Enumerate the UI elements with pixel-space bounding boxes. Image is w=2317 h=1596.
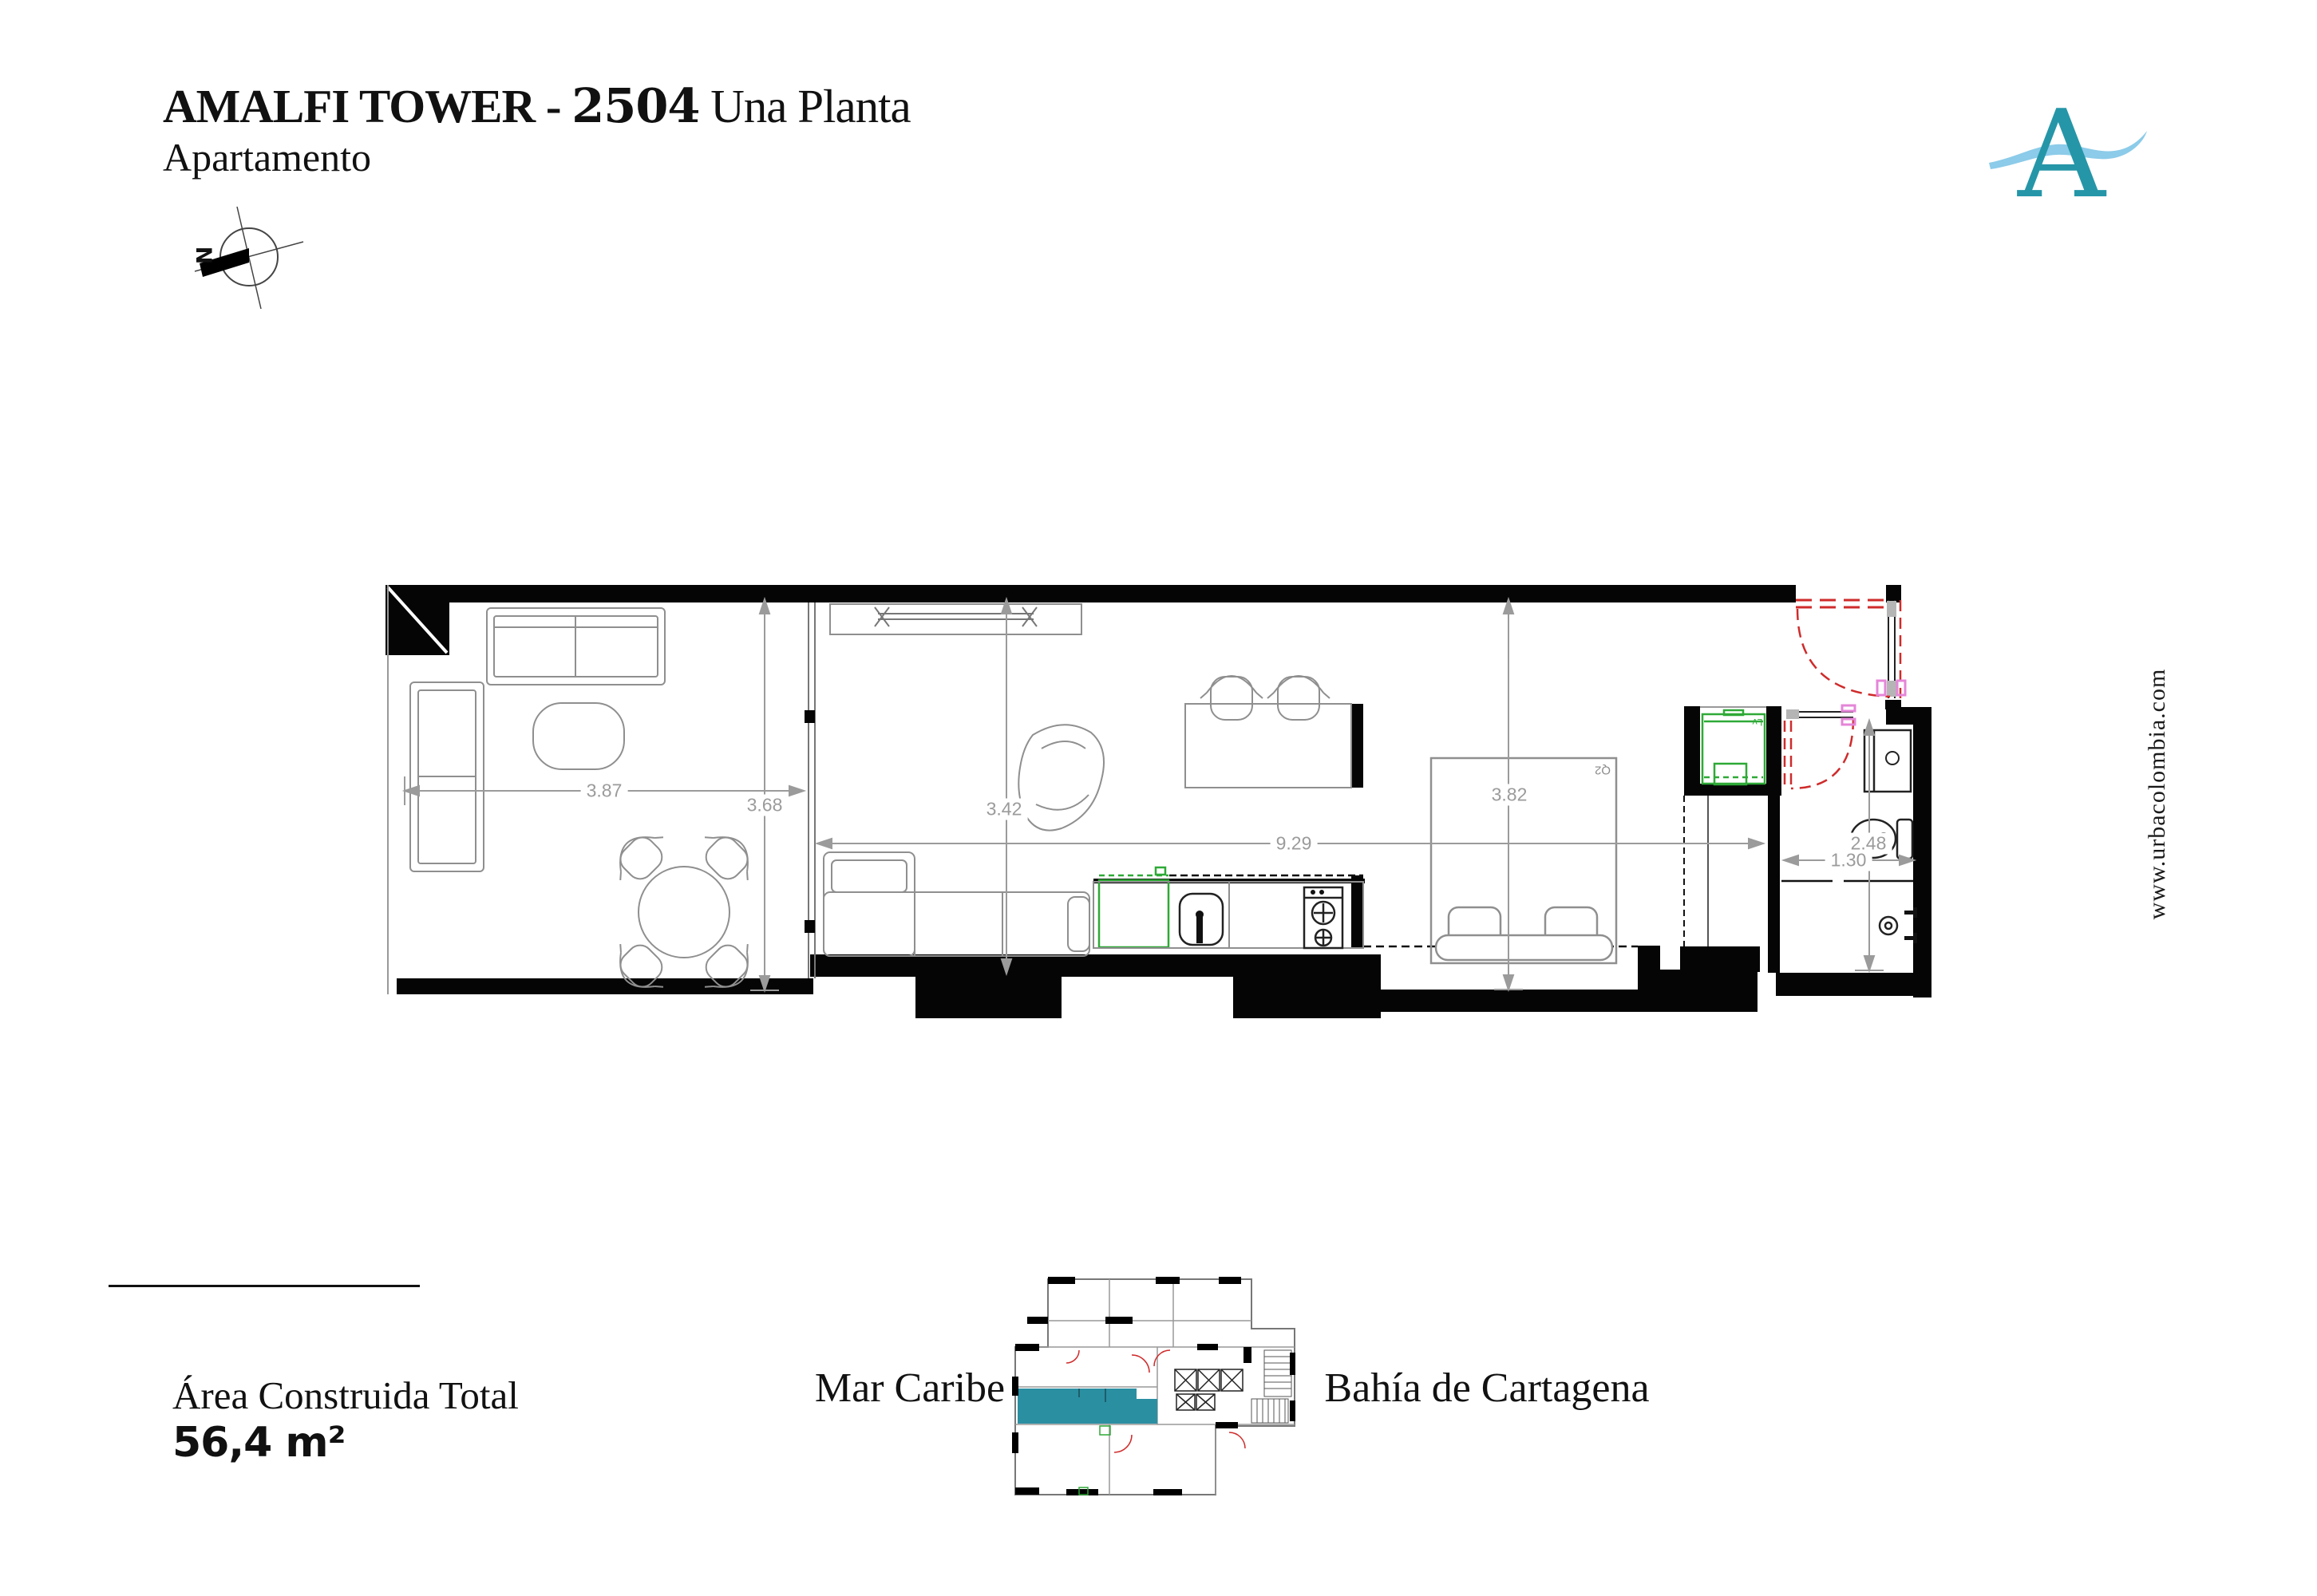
highlighted-unit-2504 xyxy=(1018,1389,1157,1424)
website-link[interactable]: www.urbacolombia.com xyxy=(2144,669,2171,920)
vanity-sink-icon xyxy=(1864,730,1911,792)
armchair-icon xyxy=(1018,725,1104,830)
project-name: AMALFI TOWER - xyxy=(163,80,571,132)
footer-divider xyxy=(109,1285,420,1287)
dim-balcony-depth: 3.68 xyxy=(741,795,789,816)
fridge-icon xyxy=(1099,867,1168,947)
dim-total-length: 9.29 xyxy=(1271,833,1318,855)
brand-logo: A xyxy=(2018,94,2105,215)
dim-bathroom-width: 1.30 xyxy=(1825,850,1872,871)
entry-door xyxy=(1796,600,1905,698)
area-label: Área Construida Total xyxy=(172,1373,519,1418)
bathroom-door xyxy=(1785,705,1855,790)
dim-balcony-width: 3.87 xyxy=(581,780,628,802)
plan-type: Una Planta xyxy=(699,80,910,132)
kitchen-fixtures xyxy=(1093,882,1363,948)
tv-icon xyxy=(875,607,1037,626)
balcony-furniture xyxy=(410,608,763,1002)
floor-plan-graphic xyxy=(0,0,2317,1596)
sea-label-right: Bahía de Cartagena xyxy=(1324,1365,1649,1412)
floorplan-sheet: AMALFI TOWER - 2504 Una Planta Apartamen… xyxy=(0,0,2317,1596)
shower-icon xyxy=(1880,907,1917,943)
logo-letter: A xyxy=(2018,84,2105,225)
compass-north-label: N xyxy=(193,247,218,265)
bed-label: Q2 xyxy=(1595,764,1611,777)
stove-icon xyxy=(1304,887,1342,948)
living-furniture xyxy=(824,604,1351,956)
sea-label-left: Mar Caribe xyxy=(815,1365,1005,1412)
dim-bedroom-width: 3.82 xyxy=(1486,784,1533,806)
washer-label: Lv xyxy=(1753,717,1763,728)
dim-living-depth: 3.42 xyxy=(981,799,1028,820)
key-plan xyxy=(1012,1277,1295,1495)
sofa-icon xyxy=(824,852,1089,956)
plan-walls xyxy=(386,585,1931,1018)
page-subtitle: Apartamento xyxy=(163,134,371,180)
area-value: 56,4 m² xyxy=(172,1419,345,1467)
sink-icon xyxy=(1180,894,1223,945)
page-title: AMALFI TOWER - 2504 Una Planta xyxy=(163,78,911,134)
unit-number: 2504 xyxy=(571,78,699,133)
